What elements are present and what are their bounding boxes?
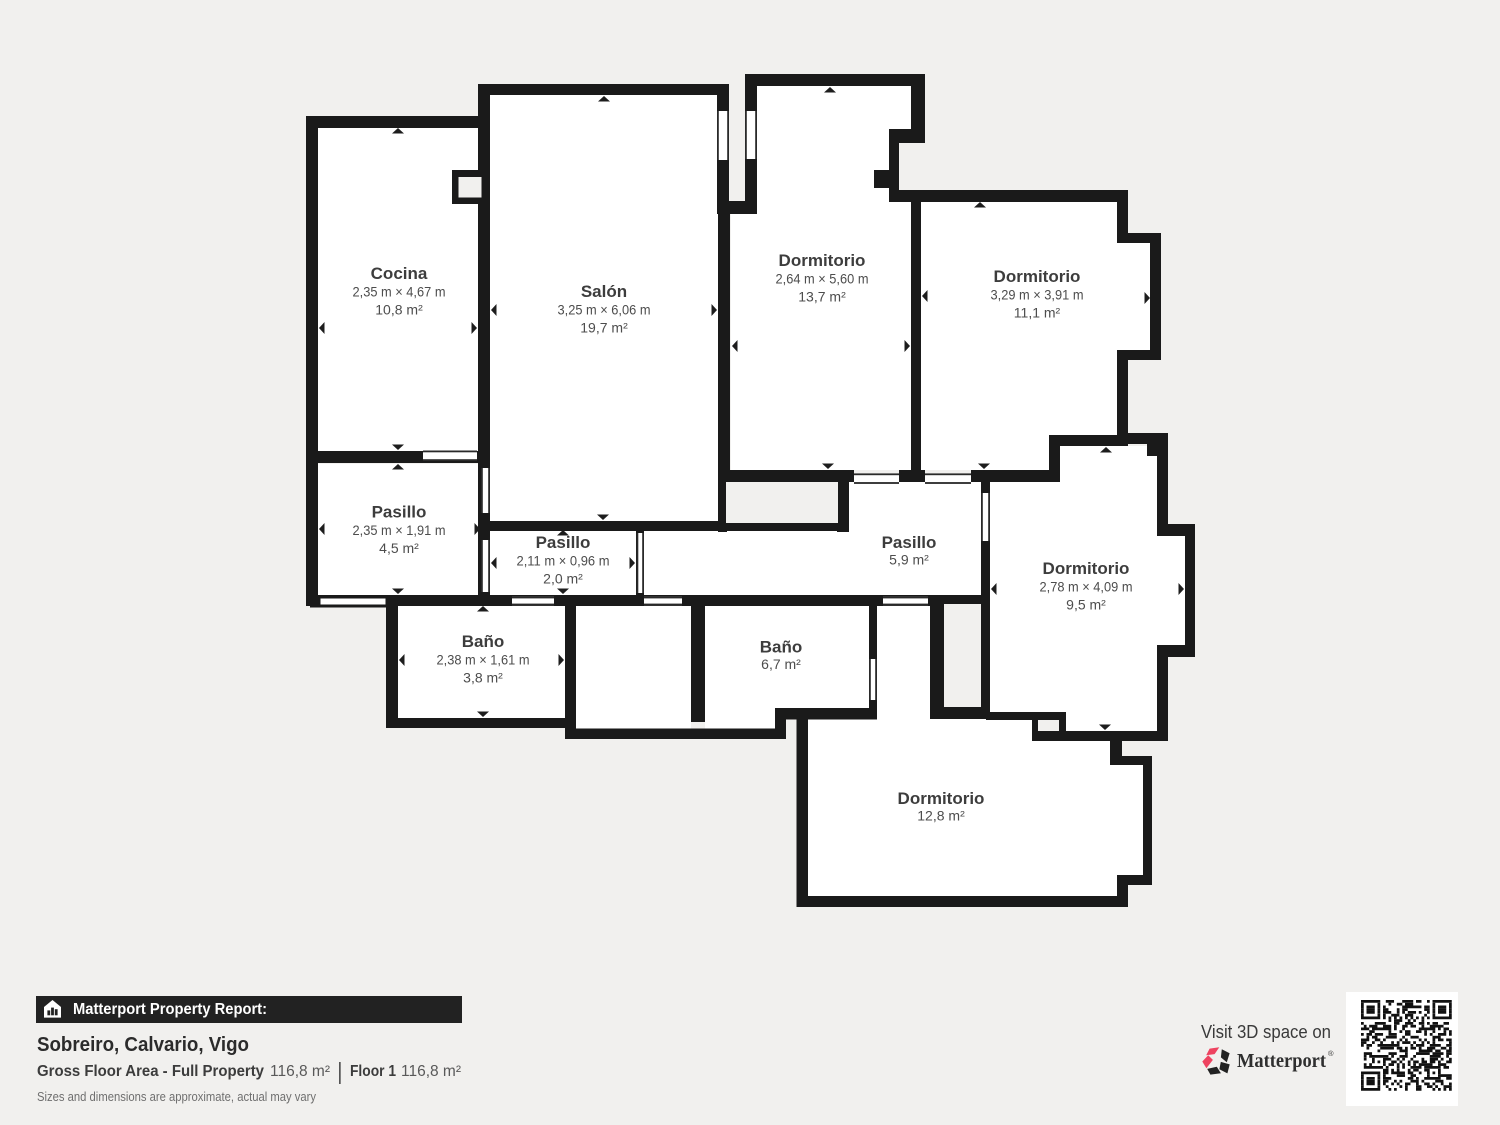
svg-text:116,8 m²: 116,8 m² [270, 1063, 330, 1080]
svg-text:2,78 m × 4,09 m: 2,78 m × 4,09 m [1040, 579, 1133, 595]
svg-text:2,11 m × 0,96 m: 2,11 m × 0,96 m [517, 553, 610, 569]
svg-text:19,7 m²: 19,7 m² [580, 320, 628, 336]
svg-text:10,8 m²: 10,8 m² [375, 302, 423, 318]
svg-text:13,7 m²: 13,7 m² [798, 289, 846, 305]
svg-text:®: ® [1328, 1049, 1334, 1058]
svg-text:9,5 m²: 9,5 m² [1066, 597, 1106, 613]
svg-text:Sizes and dimensions are appro: Sizes and dimensions are approximate, ac… [37, 1089, 316, 1104]
svg-text:Pasillo: Pasillo [536, 533, 591, 552]
svg-text:Dormitorio: Dormitorio [898, 789, 985, 808]
svg-text:Floor 1: Floor 1 [350, 1063, 396, 1080]
svg-text:2,38 m × 1,61 m: 2,38 m × 1,61 m [437, 652, 530, 668]
svg-text:Pasillo: Pasillo [372, 503, 427, 522]
svg-text:Dormitorio: Dormitorio [779, 251, 866, 270]
svg-text:Matterport Property Report:: Matterport Property Report: [73, 1001, 267, 1018]
svg-text:2,35 m × 4,67 m: 2,35 m × 4,67 m [353, 284, 446, 300]
svg-text:3,8 m²: 3,8 m² [463, 670, 503, 686]
svg-text:2,64 m × 5,60 m: 2,64 m × 5,60 m [776, 271, 869, 287]
svg-text:4,5 m²: 4,5 m² [379, 540, 419, 556]
svg-text:12,8 m²: 12,8 m² [917, 808, 965, 824]
svg-text:Sobreiro, Calvario, Vigo: Sobreiro, Calvario, Vigo [37, 1033, 249, 1056]
svg-text:Visit 3D space on: Visit 3D space on [1201, 1022, 1331, 1042]
svg-text:2,0 m²: 2,0 m² [543, 571, 583, 587]
svg-text:11,1 m²: 11,1 m² [1014, 305, 1061, 321]
svg-text:116,8 m²: 116,8 m² [401, 1063, 461, 1080]
svg-text:Matterport: Matterport [1237, 1050, 1326, 1072]
svg-text:3,25 m × 6,06 m: 3,25 m × 6,06 m [558, 302, 651, 318]
svg-text:Dormitorio: Dormitorio [994, 267, 1081, 286]
svg-text:2,35 m × 1,91 m: 2,35 m × 1,91 m [353, 522, 446, 538]
svg-text:Cocina: Cocina [371, 264, 428, 283]
svg-text:Pasillo: Pasillo [882, 533, 937, 552]
svg-text:Dormitorio: Dormitorio [1043, 559, 1130, 578]
svg-text:Gross Floor Area - Full Proper: Gross Floor Area - Full Property [37, 1063, 264, 1080]
svg-text:Baño: Baño [462, 632, 505, 651]
svg-text:Salón: Salón [581, 282, 627, 301]
svg-text:5,9 m²: 5,9 m² [889, 552, 929, 568]
svg-text:3,29 m × 3,91 m: 3,29 m × 3,91 m [991, 287, 1084, 303]
svg-text:Baño: Baño [760, 638, 803, 657]
svg-text:6,7 m²: 6,7 m² [761, 656, 801, 672]
